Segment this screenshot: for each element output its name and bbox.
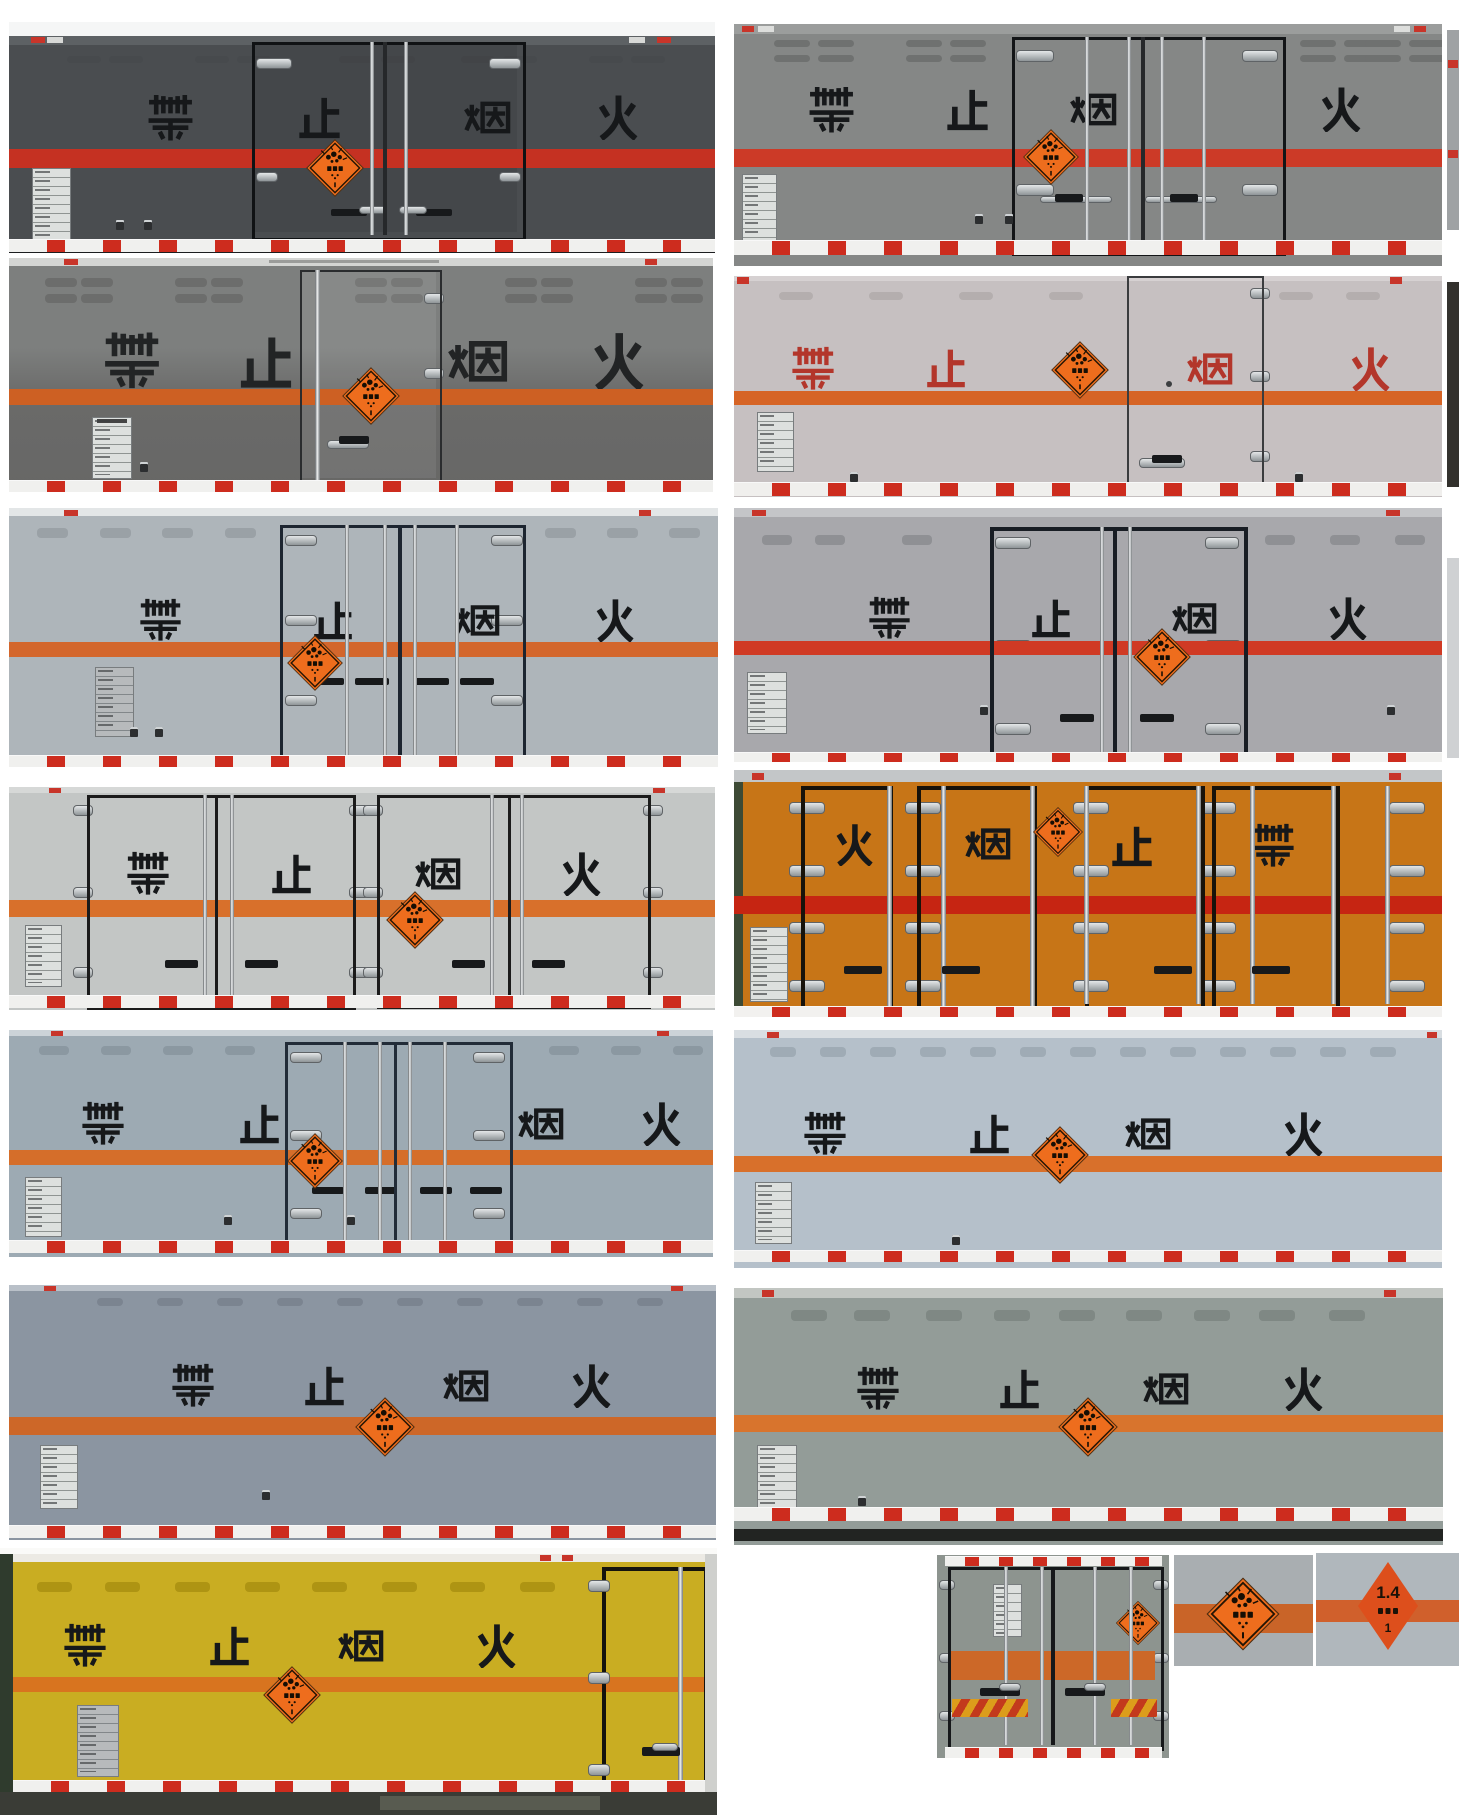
svg-text:1.4: 1.4 xyxy=(1376,1583,1400,1602)
svg-text:1: 1 xyxy=(1385,1621,1392,1635)
